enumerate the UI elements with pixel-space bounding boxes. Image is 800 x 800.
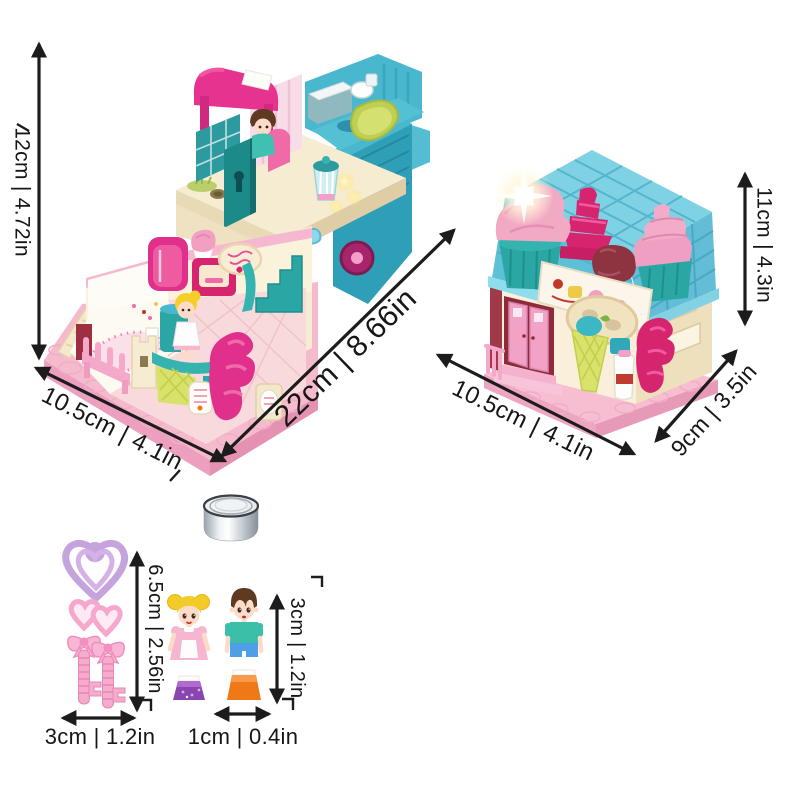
product-dimension-diagram: 12cm | 4.72in 10.5cm | 4.1in 22cm | 8.66…: [0, 0, 800, 800]
fridge: [148, 237, 188, 291]
key-bit: [89, 682, 101, 696]
doll-width-label: 1cm | 0.4in: [188, 726, 299, 748]
girl-doll-image: [168, 595, 210, 701]
toy-keys-image: [66, 543, 125, 708]
boy-doll-image: [225, 588, 263, 700]
doll-height-label: 3cm | 1.2in: [287, 598, 307, 699]
keys-height-label: 6.5cm | 2.56in: [145, 564, 165, 693]
open-house-height-label: 12cm | 4.72in: [12, 127, 33, 257]
illustration-canvas: [0, 0, 800, 800]
key-heart-handle: [93, 608, 120, 634]
button-battery-image: [204, 496, 258, 542]
shop-sign: [219, 244, 261, 274]
keys-width-label: 3cm | 1.2in: [45, 726, 156, 748]
key-bit: [113, 688, 125, 702]
closed-house-height-label: 11cm | 4.3in: [754, 187, 775, 303]
